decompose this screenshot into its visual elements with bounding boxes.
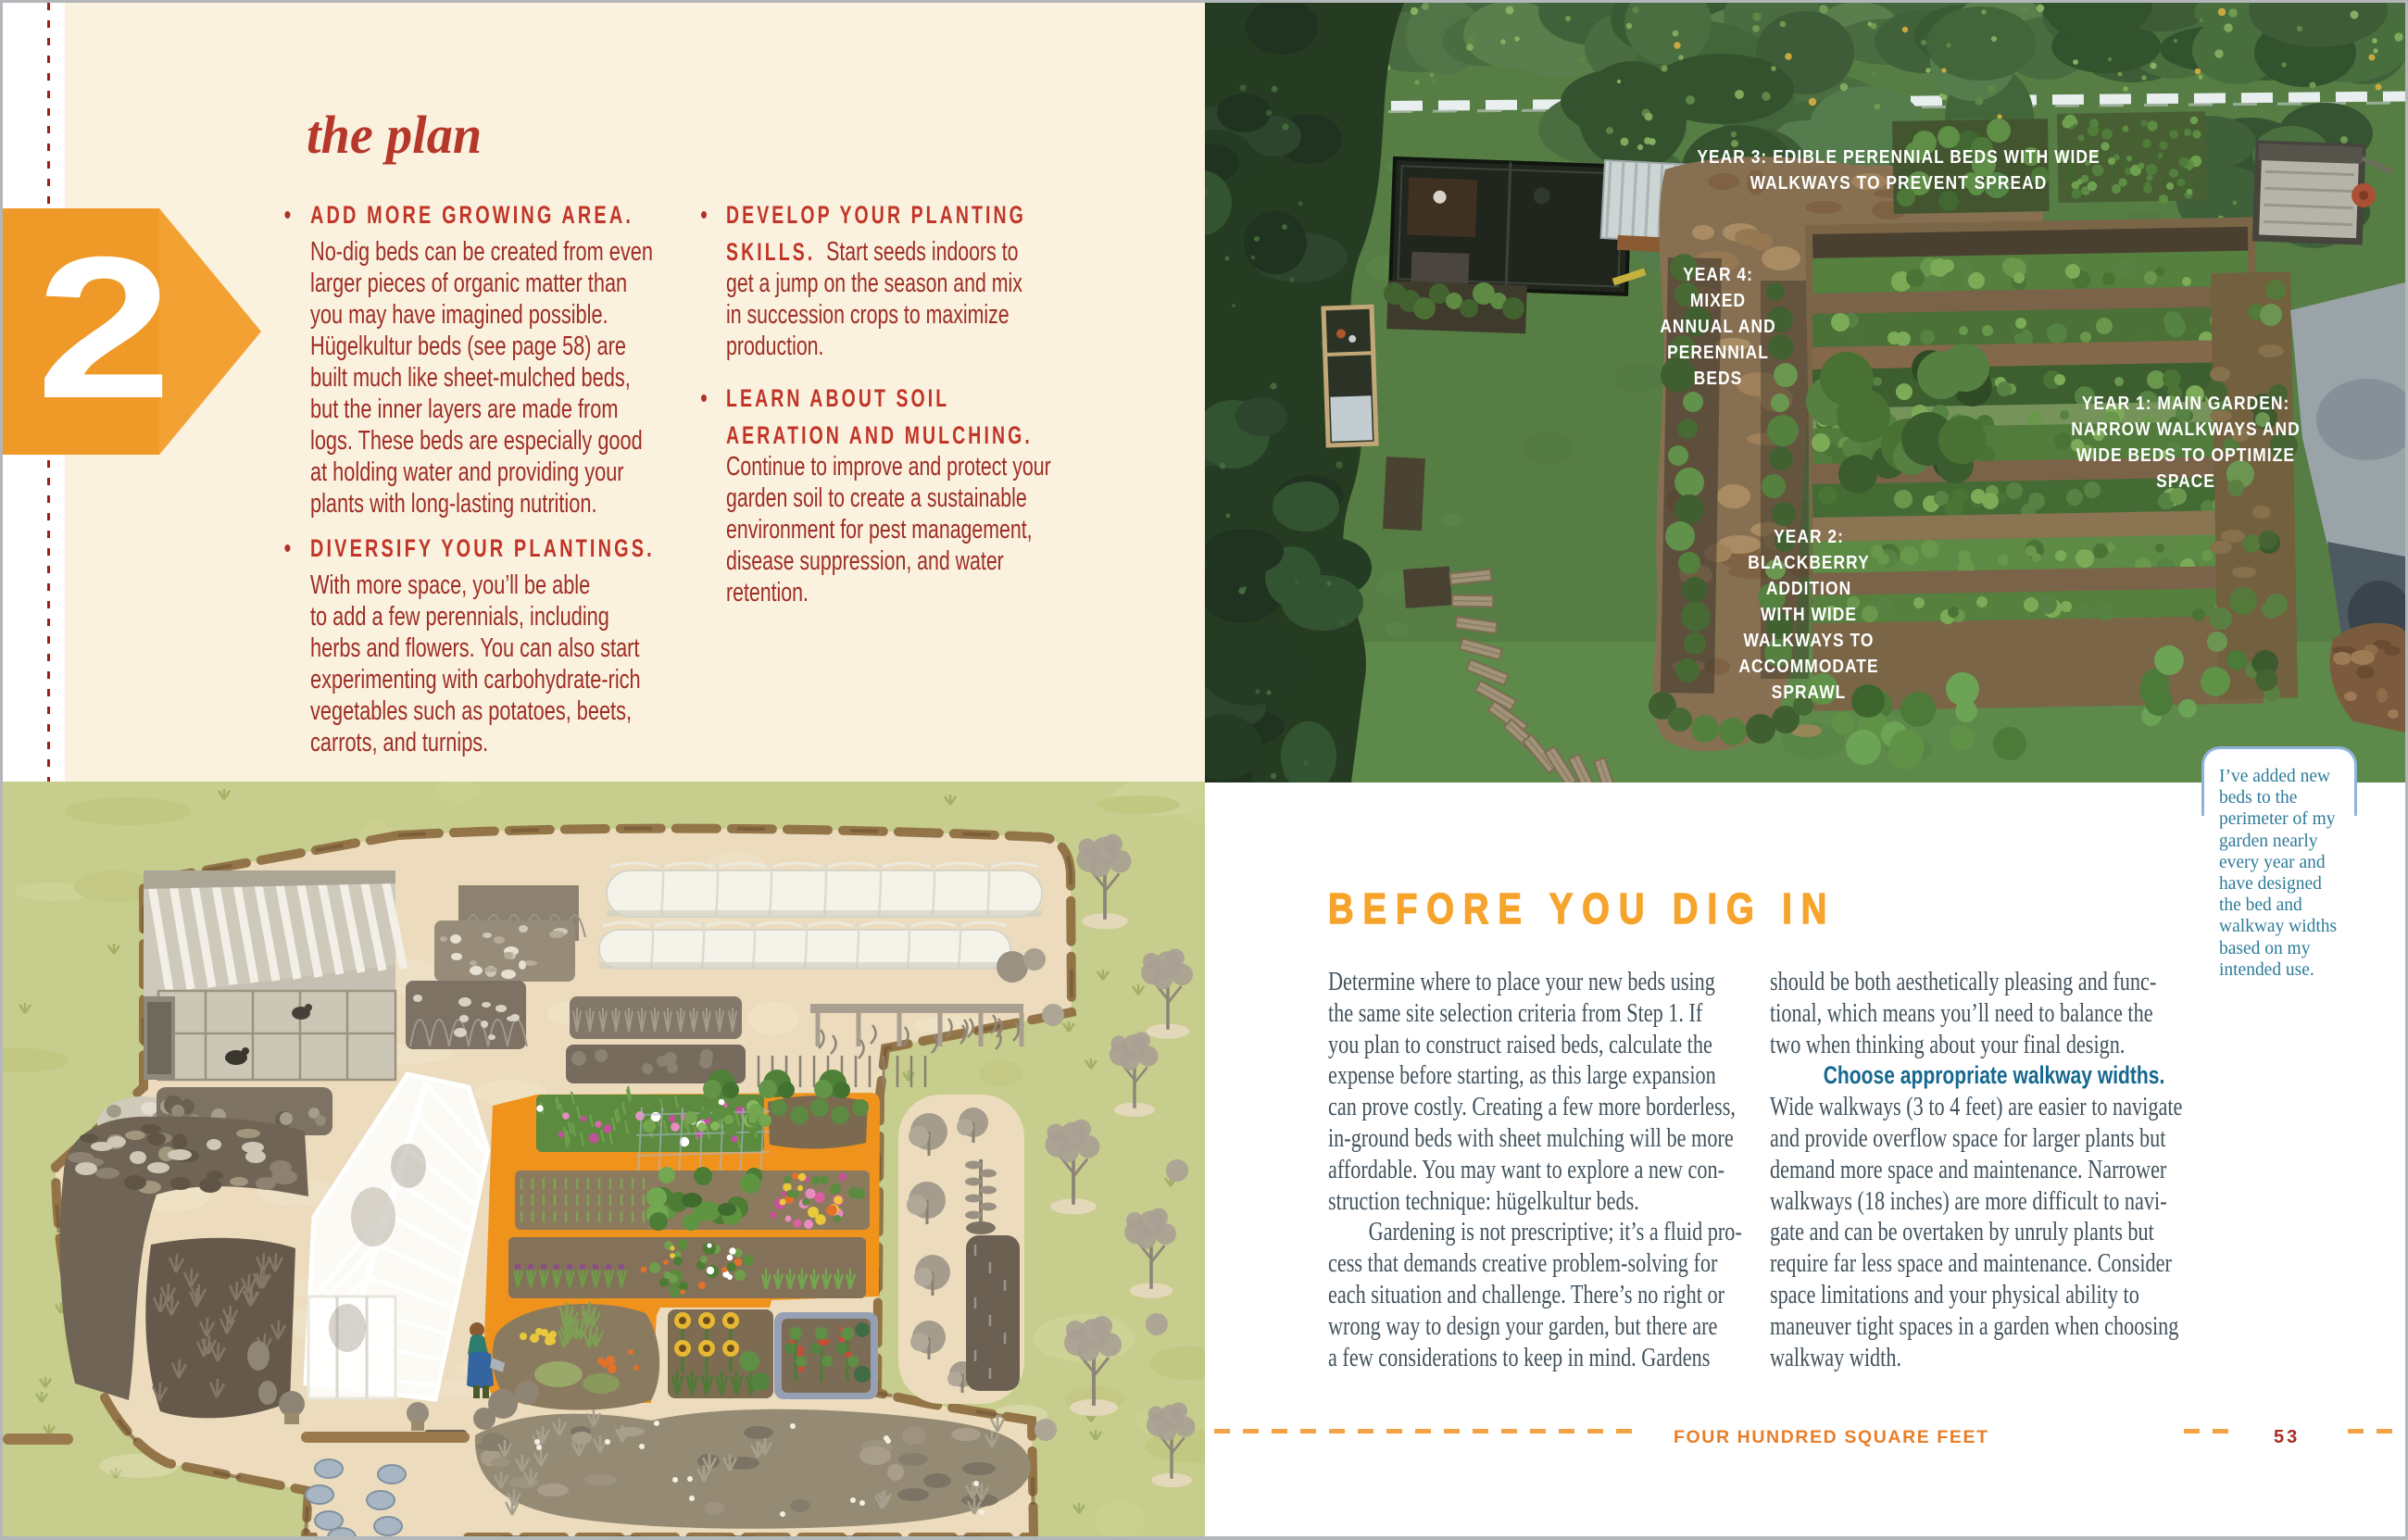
svg-text:ACCOMMODATE: ACCOMMODATE	[1738, 657, 1878, 678]
svg-text:WALKWAYS TO: WALKWAYS TO	[1744, 631, 1875, 652]
svg-text:PERENNIAL: PERENNIAL	[1667, 343, 1769, 364]
svg-text:WITH WIDE: WITH WIDE	[1761, 605, 1857, 626]
svg-text:WIDE BEDS TO OPTIMIZE: WIDE BEDS TO OPTIMIZE	[2076, 445, 2295, 467]
svg-text:WALKWAYS TO PREVENT SPREAD: WALKWAYS TO PREVENT SPREAD	[1750, 173, 2048, 194]
svg-text:YEAR 4:: YEAR 4:	[1683, 265, 1753, 286]
svg-text:MIXED: MIXED	[1690, 291, 1746, 312]
svg-text:ADDITION: ADDITION	[1766, 579, 1851, 600]
svg-text:BLACKBERRY: BLACKBERRY	[1748, 553, 1869, 574]
svg-text:ANNUAL AND: ANNUAL AND	[1660, 317, 1775, 338]
svg-text:YEAR 3: EDIBLE PERENNIAL BEDS: YEAR 3: EDIBLE PERENNIAL BEDS WITH WIDE	[1697, 147, 2100, 169]
svg-text:YEAR 1: MAIN GARDEN:: YEAR 1: MAIN GARDEN:	[2082, 394, 2290, 415]
svg-text:BEDS: BEDS	[1694, 369, 1742, 390]
svg-text:SPRAWL: SPRAWL	[1772, 682, 1847, 704]
svg-text:SPACE: SPACE	[2156, 471, 2215, 493]
svg-text:YEAR 2:: YEAR 2:	[1774, 527, 1844, 548]
svg-text:NARROW WALKWAYS AND: NARROW WALKWAYS AND	[2071, 419, 2300, 441]
